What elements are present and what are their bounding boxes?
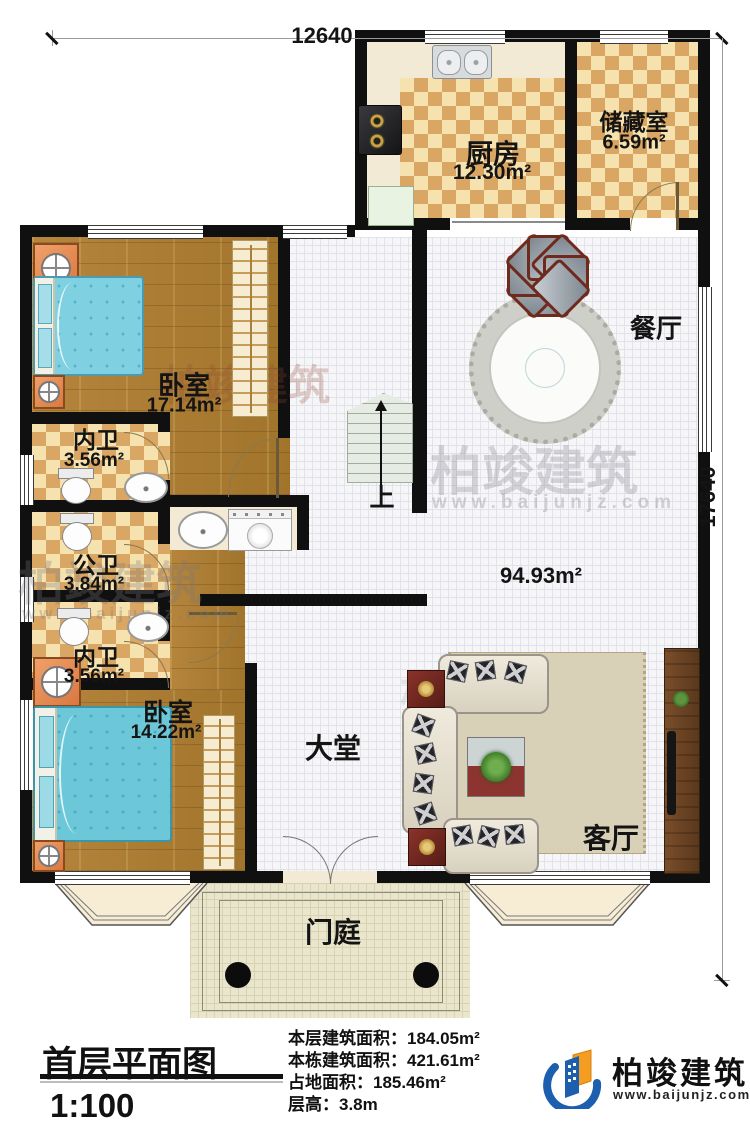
burner bbox=[369, 133, 385, 149]
sofa-pillow bbox=[446, 660, 469, 683]
washing-machine bbox=[228, 509, 292, 551]
porch-label: 门庭 bbox=[305, 911, 361, 951]
bed-pillow bbox=[39, 716, 54, 768]
wardrobe-rod bbox=[250, 245, 252, 413]
plant bbox=[673, 691, 689, 707]
wardrobe bbox=[203, 715, 235, 870]
living-label: 客厅 bbox=[583, 817, 639, 857]
bath2-area: 3.84m² bbox=[64, 574, 124, 596]
burner bbox=[369, 113, 385, 129]
info-label: 占地面积： bbox=[288, 1073, 373, 1092]
info-value: 421.61m² bbox=[407, 1051, 480, 1070]
info-value: 184.05m² bbox=[407, 1029, 480, 1048]
sofa-pillow bbox=[477, 825, 500, 848]
bedroom2-area: 14.22m² bbox=[131, 722, 202, 744]
storage-door-leaf bbox=[676, 182, 679, 230]
washer-panel bbox=[229, 510, 291, 519]
info-label: 层高： bbox=[288, 1095, 339, 1114]
kitchen-area: 12.30m² bbox=[453, 161, 531, 185]
brand-url: www.baijunjz.com bbox=[613, 1087, 750, 1102]
bath3-area: 3.56m² bbox=[64, 666, 124, 688]
sofa-bottom bbox=[443, 818, 539, 874]
coffee-table bbox=[467, 737, 525, 797]
kitchen-sink bbox=[432, 45, 492, 79]
bed-pillow bbox=[39, 776, 54, 828]
stairs-up-label: 上 bbox=[369, 478, 394, 514]
bed-fold bbox=[59, 714, 95, 834]
wall bbox=[158, 512, 170, 544]
window bbox=[88, 225, 203, 239]
compass-ornament-icon bbox=[38, 845, 60, 867]
bed-pillow bbox=[38, 284, 52, 324]
sofa-pillow bbox=[504, 661, 527, 684]
build-info: 本层建筑面积：184.05m² 本栋建筑面积：421.61m² 占地面积：185… bbox=[288, 1028, 538, 1116]
sink-basin bbox=[437, 50, 461, 75]
sofa-pillow bbox=[414, 802, 438, 826]
window bbox=[600, 30, 668, 44]
accent-cabinet bbox=[408, 828, 446, 866]
bathroom-sink bbox=[124, 472, 168, 503]
bedroom1-door-leaf bbox=[276, 438, 279, 498]
wall bbox=[565, 218, 630, 230]
bay-window-right bbox=[455, 878, 665, 933]
wall bbox=[278, 237, 290, 438]
dimension-right-value: 17640 bbox=[695, 466, 721, 527]
plan-scale: 1:100 bbox=[50, 1087, 134, 1124]
info-label: 本栋建筑面积： bbox=[288, 1051, 407, 1070]
sofa-pillow bbox=[475, 660, 496, 681]
bedroom1-area: 17.14m² bbox=[147, 395, 222, 418]
plant bbox=[481, 752, 511, 782]
window bbox=[425, 30, 505, 44]
sink-basin bbox=[464, 50, 488, 75]
wall bbox=[200, 594, 427, 606]
utility-sink bbox=[178, 511, 228, 549]
info-line: 本栋建筑面积：421.61m² bbox=[288, 1050, 538, 1072]
gold-ornament-icon bbox=[418, 681, 434, 697]
gold-ornament-icon bbox=[419, 839, 435, 855]
window bbox=[20, 455, 34, 505]
wall bbox=[245, 663, 257, 871]
fridge bbox=[368, 186, 414, 226]
washer-door bbox=[247, 523, 273, 549]
dining-label: 餐厅 bbox=[630, 309, 682, 346]
bedroom2-door-leaf bbox=[189, 612, 237, 615]
title-underline bbox=[40, 1074, 283, 1079]
sofa-left bbox=[402, 706, 458, 834]
info-line: 层高：3.8m bbox=[288, 1094, 538, 1116]
dimension-line-right bbox=[722, 38, 723, 980]
kitchen-pass-threshold bbox=[452, 221, 565, 223]
info-value: 3.8m bbox=[339, 1095, 378, 1114]
window bbox=[698, 287, 712, 452]
tv-cabinet bbox=[664, 648, 700, 874]
window-bay-sill bbox=[55, 871, 190, 885]
wall bbox=[565, 42, 577, 230]
wall bbox=[297, 495, 309, 550]
sofa-pillow bbox=[411, 713, 435, 737]
sofa-pillow bbox=[413, 773, 434, 794]
stairs-direction-arrow bbox=[375, 400, 387, 411]
bath1-area: 3.56m² bbox=[64, 450, 124, 472]
sofa-top bbox=[438, 654, 549, 714]
wall bbox=[412, 225, 427, 513]
hall-label: 大堂 bbox=[305, 727, 361, 767]
floor-plan-canvas: 柏竣建筑 柏竣建筑 www.baijunjz.com 柏竣建筑 www.baij… bbox=[0, 0, 750, 1125]
bay-window-left bbox=[40, 878, 220, 933]
nightstand bbox=[33, 840, 65, 872]
accent-cabinet bbox=[407, 670, 445, 708]
bathroom-sink bbox=[127, 612, 169, 642]
wardrobe bbox=[232, 240, 268, 417]
info-line: 占地面积：185.46m² bbox=[288, 1072, 538, 1094]
sofa-pillow bbox=[414, 742, 437, 765]
dimension-line-top bbox=[52, 38, 722, 39]
porch-column bbox=[225, 962, 251, 988]
compass-ornament-icon bbox=[38, 381, 60, 403]
info-label: 本层建筑面积： bbox=[288, 1029, 407, 1048]
tv bbox=[667, 731, 676, 815]
dimension-top-value: 12640 bbox=[291, 23, 352, 49]
hall-area: 94.93m² bbox=[500, 563, 582, 589]
info-line: 本层建筑面积：184.05m² bbox=[288, 1028, 538, 1050]
brand-logo-icon bbox=[543, 1045, 607, 1109]
info-value: 185.46m² bbox=[373, 1073, 446, 1092]
porch-column bbox=[413, 962, 439, 988]
window bbox=[20, 577, 34, 622]
bed-fold bbox=[57, 282, 89, 370]
wardrobe-rod bbox=[219, 719, 221, 866]
storage-area: 6.59m² bbox=[602, 132, 665, 155]
sofa-pillow bbox=[504, 824, 525, 845]
bed-pillow bbox=[38, 328, 52, 368]
bed bbox=[33, 276, 144, 376]
window bbox=[20, 700, 34, 790]
toilet-bowl bbox=[61, 477, 91, 504]
title-underline-shadow bbox=[40, 1081, 283, 1083]
nightstand bbox=[33, 375, 65, 409]
dining-table-hub bbox=[525, 348, 565, 388]
sofa-pillow bbox=[451, 824, 473, 846]
wall bbox=[678, 218, 710, 230]
stove bbox=[358, 105, 402, 155]
window bbox=[283, 225, 347, 239]
